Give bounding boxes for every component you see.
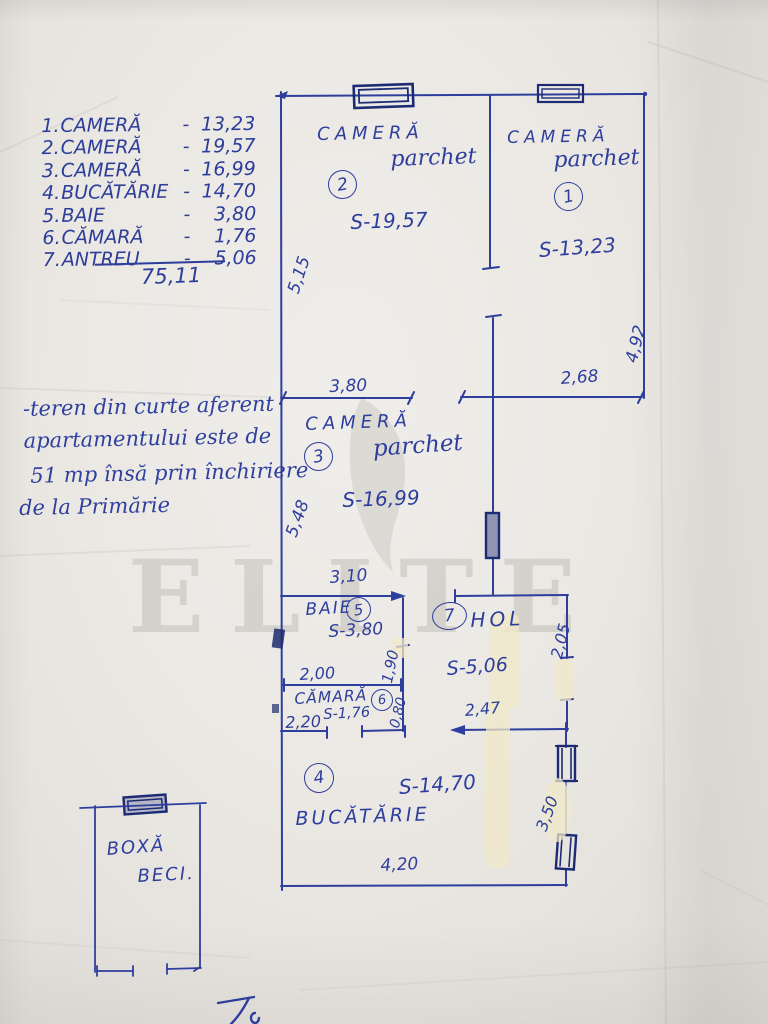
room1-floor: parchet [553, 145, 640, 173]
window-icon-kitchen-1 [555, 746, 578, 781]
baie-area: S-3,80 [328, 619, 384, 642]
wall-mark [272, 704, 279, 713]
dim-2-68: 2,68 [560, 366, 599, 389]
note-line: 51 mp însă prin închiriere [30, 454, 309, 492]
dim-2-47: 2,47 [464, 698, 501, 720]
beci-label: BECI. [137, 863, 195, 887]
room2-floor: parchet [390, 144, 477, 172]
boxa-beci-walls [80, 803, 206, 976]
room3-name: CAMERĂ [305, 410, 412, 435]
list-item: 5.BAIE-3,80 [42, 202, 256, 227]
list-item: 4.BUCĂTĂRIE-14,70 [42, 180, 256, 205]
dim-2-20: 2,20 [285, 712, 321, 732]
door-icon-baie-wall [272, 628, 286, 648]
list-item: 2.CAMERĂ-19,57 [41, 135, 255, 160]
margin-note: -teren din curte aferent apartamentului … [15, 387, 310, 524]
hol-name: HOL [470, 606, 525, 632]
room2-area: S-19,57 [350, 207, 428, 234]
note-line: de la Primărie [19, 486, 310, 524]
list-item: 3.CAMERĂ-16,99 [42, 158, 256, 183]
room2-name: CAMERĂ [317, 122, 424, 145]
note-line: apartamentului este de [23, 419, 308, 457]
door-icon-room3 [486, 513, 499, 558]
dim-2-00: 2,00 [299, 663, 336, 684]
list-item: 6.CĂMARĂ-1,76 [42, 225, 256, 250]
room1-name: CAMERĂ [507, 126, 610, 148]
dim-3-80: 3,80 [329, 376, 368, 397]
hol-area: S-5,06 [446, 654, 509, 680]
camara-area: S-1,76 [323, 705, 371, 723]
total-area: 75,11 [141, 263, 202, 289]
floor-plan-photo: ELITE [0, 0, 768, 1024]
bucatarie-name: BUCĂTĂRIE [295, 803, 430, 830]
dim-4-20: 4,20 [380, 854, 419, 876]
room-area-list: 1.CAMERĂ-13,23 2.CAMERĂ-19,57 3.CAMERĂ-1… [41, 113, 257, 272]
boxa-label: BOXĂ [106, 835, 166, 860]
room3-area: S-16,99 [342, 485, 420, 512]
signature-mark [218, 997, 259, 1024]
list-item: 1.CAMERĂ-13,23 [41, 113, 255, 138]
dim-3-10: 3,10 [329, 565, 368, 588]
